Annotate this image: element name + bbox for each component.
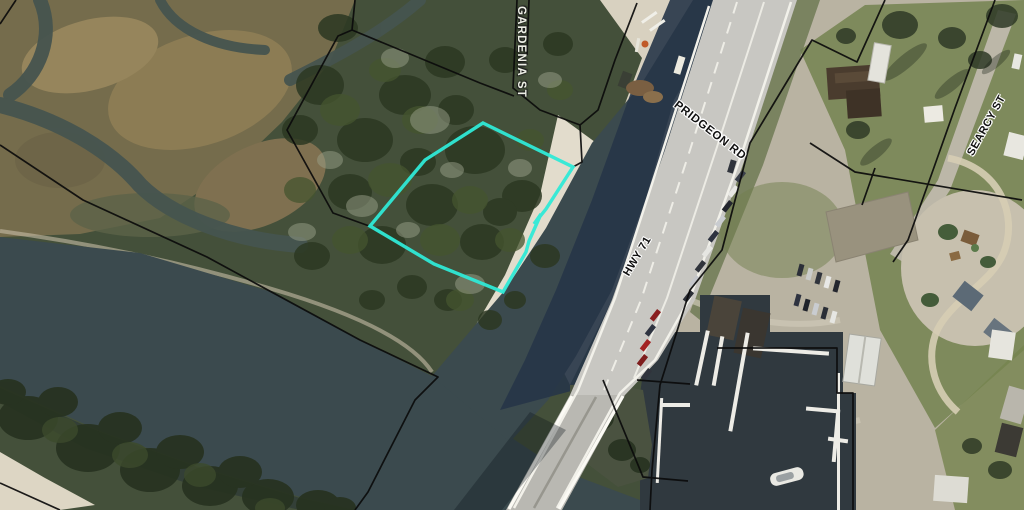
shed xyxy=(923,105,943,123)
marina-building xyxy=(843,334,881,386)
map-canvas[interactable]: GARDENIA ST PRIDGEON RD HWY 71 SEARCY ST xyxy=(0,0,1024,510)
excavator xyxy=(642,41,649,48)
shed xyxy=(933,475,969,503)
shed xyxy=(988,329,1016,360)
aerial-imagery xyxy=(0,0,1024,510)
marina-basin xyxy=(640,332,856,510)
